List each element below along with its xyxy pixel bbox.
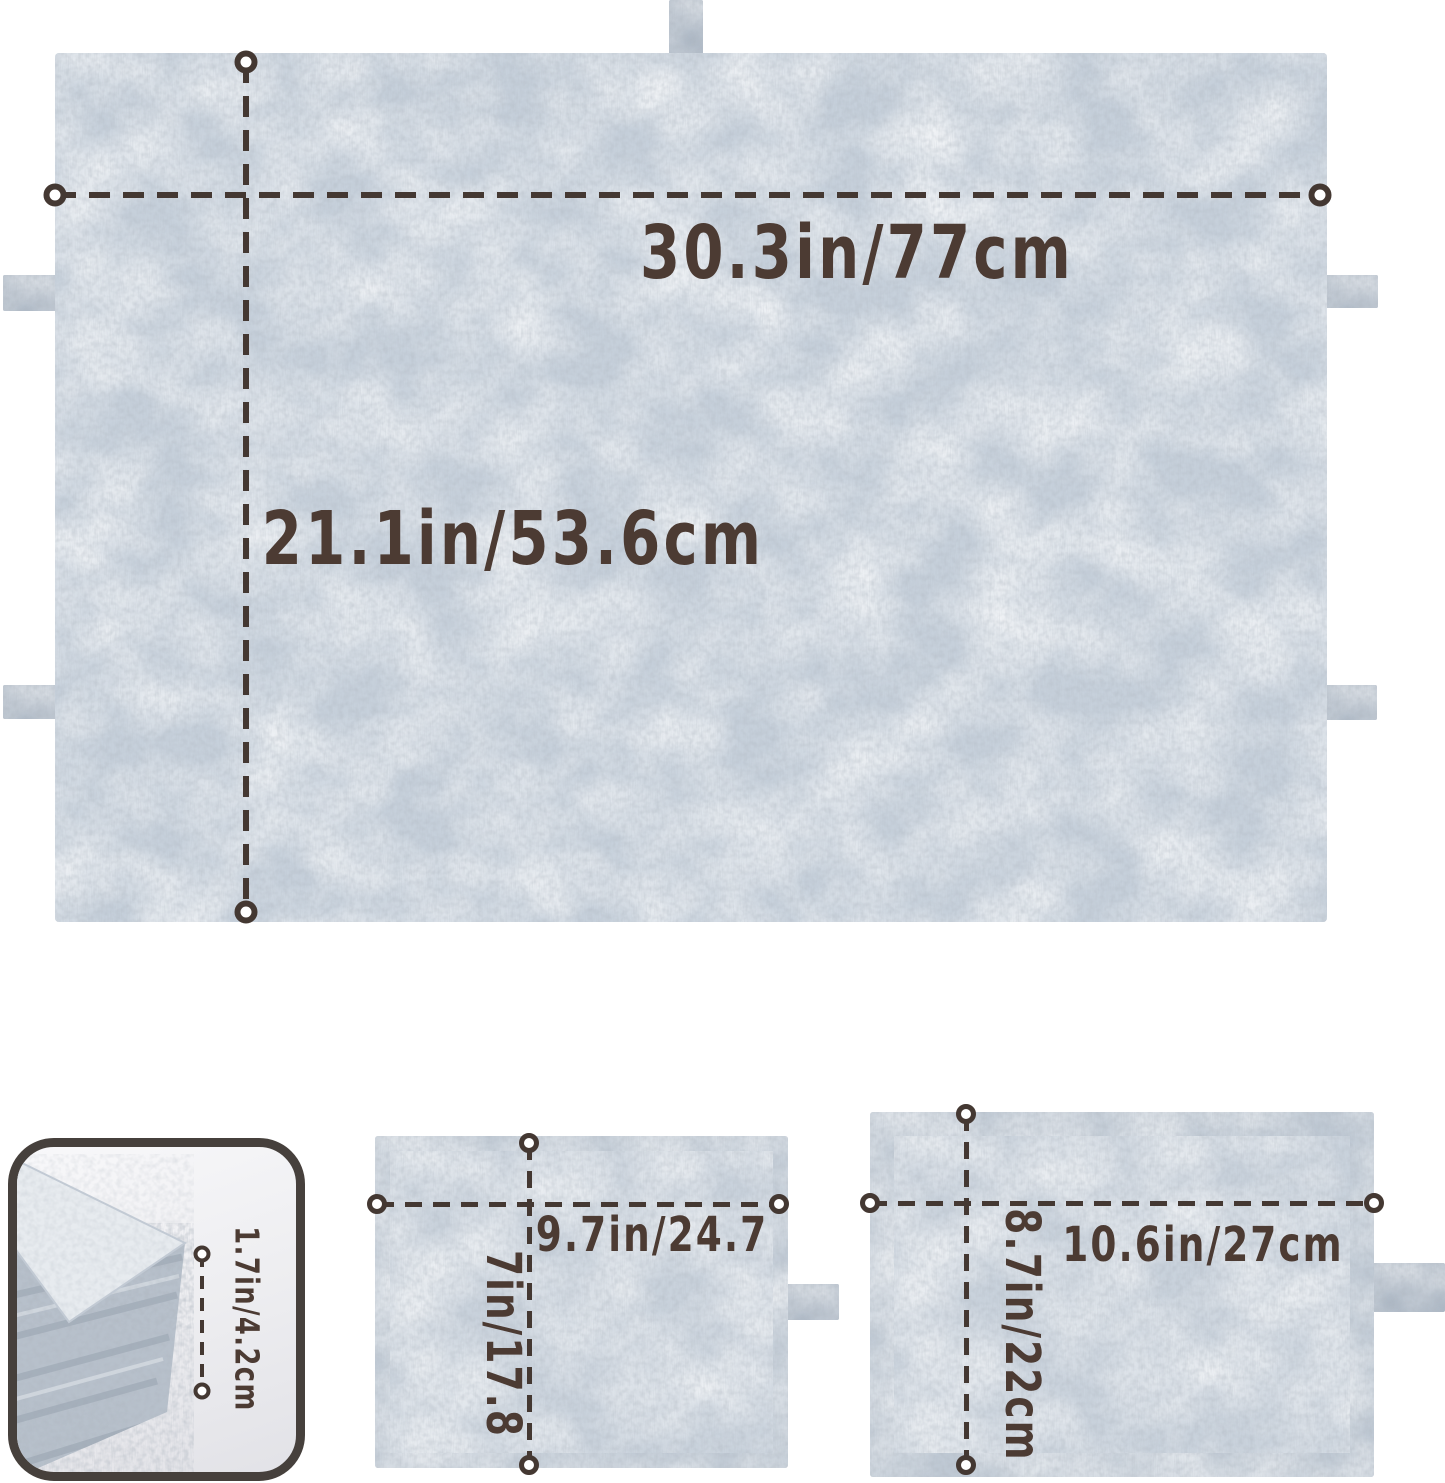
small-tray-height-label: 7in/17.8: [475, 1250, 531, 1438]
thickness-dimension-line: [200, 1254, 204, 1391]
small-tray-side-tab: [780, 1284, 839, 1320]
thickness-label: 1.7in/4.2cm: [228, 1226, 267, 1411]
thickness-detail-box: 1.7in/4.2cm: [8, 1138, 305, 1481]
dimension-endpoint-dot: [44, 184, 67, 207]
main-mat-right-tab-upper: [1325, 275, 1378, 308]
large-tray-height-dimension-line: [964, 1114, 969, 1465]
dimension-endpoint-dot: [194, 1383, 211, 1400]
dimension-endpoint-dot: [235, 901, 258, 924]
main-mat-right-tab-lower: [1325, 685, 1377, 720]
dimension-endpoint-dot: [194, 1246, 211, 1263]
main-mat-top-tab: [669, 0, 703, 58]
main-mat-left-tab-upper: [3, 275, 57, 311]
dimension-endpoint-dot: [1364, 1193, 1384, 1213]
dimension-endpoint-dot: [1309, 184, 1332, 207]
main-mat-width-label: 30.3in/77cm: [640, 210, 1074, 296]
main-mat-height-dimension-line: [243, 62, 249, 912]
dimension-endpoint-dot: [860, 1193, 880, 1213]
dimension-endpoint-dot: [367, 1194, 387, 1214]
dimension-endpoint-dot: [235, 51, 258, 74]
large-tray-height-label: 8.7in/22cm: [994, 1208, 1050, 1461]
large-tray-floor: [894, 1136, 1350, 1453]
dimension-endpoint-dot: [519, 1455, 539, 1475]
main-mat-height-label: 21.1in/53.6cm: [262, 496, 764, 582]
small-tray-floor: [390, 1151, 773, 1453]
large-tray-side-tab: [1368, 1263, 1445, 1312]
product-dimension-diagram: 30.3in/77cm 21.1in/53.6cm: [0, 0, 1445, 1483]
dimension-endpoint-dot: [519, 1133, 539, 1153]
small-tray-width-label: 9.7in/24.7: [536, 1207, 768, 1263]
dimension-endpoint-dot: [956, 1455, 976, 1475]
dimension-endpoint-dot: [956, 1104, 976, 1124]
large-tray-width-label: 10.6in/27cm: [1062, 1217, 1344, 1273]
dimension-endpoint-dot: [769, 1194, 789, 1214]
large-tray-width-dimension-line: [870, 1201, 1374, 1206]
main-mat-left-tab-lower: [3, 685, 57, 719]
